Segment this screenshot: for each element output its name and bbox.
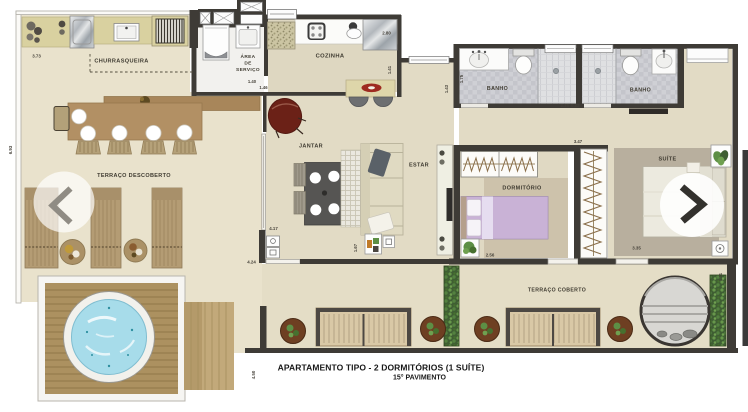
svg-text:BANHO: BANHO xyxy=(630,88,651,94)
svg-text:1.43: 1.43 xyxy=(444,84,449,93)
svg-text:6.93: 6.93 xyxy=(8,145,13,154)
svg-text:ÁREA: ÁREA xyxy=(241,53,256,60)
svg-text:2.56: 2.56 xyxy=(486,253,495,258)
svg-text:BANHO: BANHO xyxy=(487,86,508,92)
svg-text:2.35 0.82: 2.35 0.82 xyxy=(561,103,580,108)
svg-text:4.24: 4.24 xyxy=(247,260,256,265)
svg-text:3.73: 3.73 xyxy=(32,54,41,59)
svg-text:SERVIÇO: SERVIÇO xyxy=(236,67,260,73)
svg-text:1.67: 1.67 xyxy=(353,243,358,252)
svg-text:DORMITÓRIO: DORMITÓRIO xyxy=(502,184,542,192)
svg-text:TERRAÇO COBERTO: TERRAÇO COBERTO xyxy=(528,288,586,294)
svg-text:COZINHA: COZINHA xyxy=(316,54,345,60)
svg-text:2.80: 2.80 xyxy=(382,31,391,36)
svg-text:1.40: 1.40 xyxy=(248,79,257,84)
svg-text:4.50: 4.50 xyxy=(251,370,256,379)
svg-text:TERRAÇO DESCOBERTO: TERRAÇO DESCOBERTO xyxy=(97,173,171,179)
svg-text:3.35: 3.35 xyxy=(632,246,641,251)
svg-text:SUÍTE: SUÍTE xyxy=(659,155,677,163)
svg-text:1.46: 1.46 xyxy=(259,85,268,90)
svg-text:4.17: 4.17 xyxy=(269,226,278,231)
svg-text:3.47: 3.47 xyxy=(574,139,583,144)
svg-text:1.75: 1.75 xyxy=(459,74,464,83)
svg-text:1.21: 1.21 xyxy=(718,272,723,281)
svg-text:DE: DE xyxy=(244,61,252,67)
svg-text:JANTAR: JANTAR xyxy=(299,144,323,150)
svg-text:ESTAR: ESTAR xyxy=(409,163,429,169)
svg-text:APARTAMENTO TIPO - 2 DORMITÓ: APARTAMENTO TIPO - 2 DORMITÓRIOS (1 SUÍT… xyxy=(278,362,485,373)
svg-text:15° PAVIMENTO: 15° PAVIMENTO xyxy=(393,374,447,382)
svg-text:CHURRASQUEIRA: CHURRASQUEIRA xyxy=(94,59,148,65)
svg-text:1.41: 1.41 xyxy=(387,65,392,74)
